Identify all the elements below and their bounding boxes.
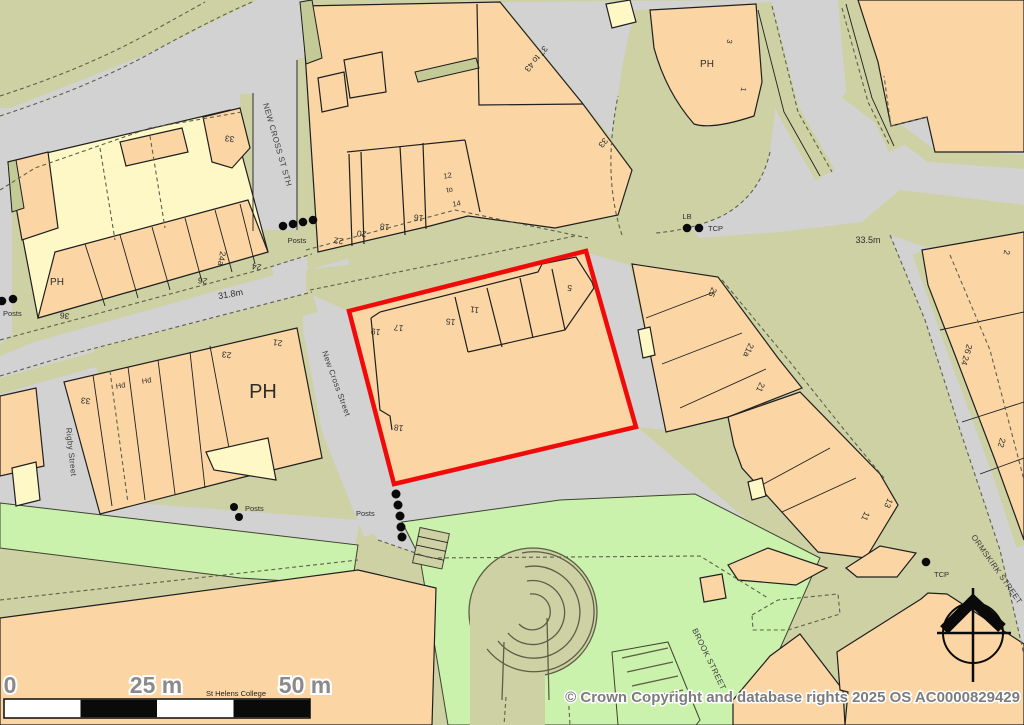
tcp-label-north: TCP bbox=[708, 224, 723, 233]
ph-label-island: PH bbox=[700, 59, 714, 70]
building-number: 24 bbox=[251, 261, 262, 272]
building-number: 22 bbox=[333, 235, 344, 246]
building-number: 26 bbox=[197, 275, 208, 286]
building-number: 21 bbox=[272, 337, 283, 348]
building-number: 11 bbox=[469, 304, 479, 315]
posts-label-mid: Posts bbox=[245, 504, 264, 513]
ph-label-nw: PH bbox=[50, 277, 64, 288]
os-map-screenshot: NEW CROSS ST STH New Cross Street Rigby … bbox=[0, 0, 1024, 725]
hd-label: Hd bbox=[141, 375, 152, 386]
building-number: 15 bbox=[445, 316, 456, 327]
building-number: 17 bbox=[393, 322, 404, 333]
college-label: St Helens College bbox=[206, 689, 266, 698]
tcp-label-south: TCP bbox=[934, 570, 949, 579]
building-number: 20 bbox=[356, 228, 367, 239]
building-number: 33 bbox=[80, 395, 91, 406]
building-number: 19 bbox=[370, 326, 381, 337]
scale-label-zero: 0 bbox=[4, 672, 17, 698]
lb-label: LB bbox=[682, 212, 691, 221]
scale-label-50m: 50 m bbox=[279, 672, 331, 698]
posts-label-west: Posts bbox=[3, 309, 22, 318]
copyright-text: © Crown Copyright and database rights 20… bbox=[565, 689, 1020, 706]
spot-height-33-5: 33.5m bbox=[855, 235, 880, 245]
building-number: 18 bbox=[393, 422, 404, 433]
ph-label-west: PH bbox=[249, 381, 277, 403]
map-canvas: NEW CROSS ST STH New Cross Street Rigby … bbox=[0, 0, 1024, 725]
posts-label-south: Posts bbox=[356, 509, 375, 518]
building-number: 16 bbox=[413, 212, 424, 223]
building-number: 12 bbox=[443, 170, 453, 180]
building-number: 33 bbox=[224, 133, 235, 144]
posts-label-north: Posts bbox=[288, 236, 307, 245]
building-number: 18 bbox=[379, 221, 390, 232]
scale-label-25m: 25 m bbox=[130, 672, 182, 698]
hd-label: Hd bbox=[115, 380, 126, 391]
building-number: 23 bbox=[221, 349, 232, 360]
building-number: 36 bbox=[59, 310, 70, 321]
building-number: 14 bbox=[452, 198, 462, 208]
